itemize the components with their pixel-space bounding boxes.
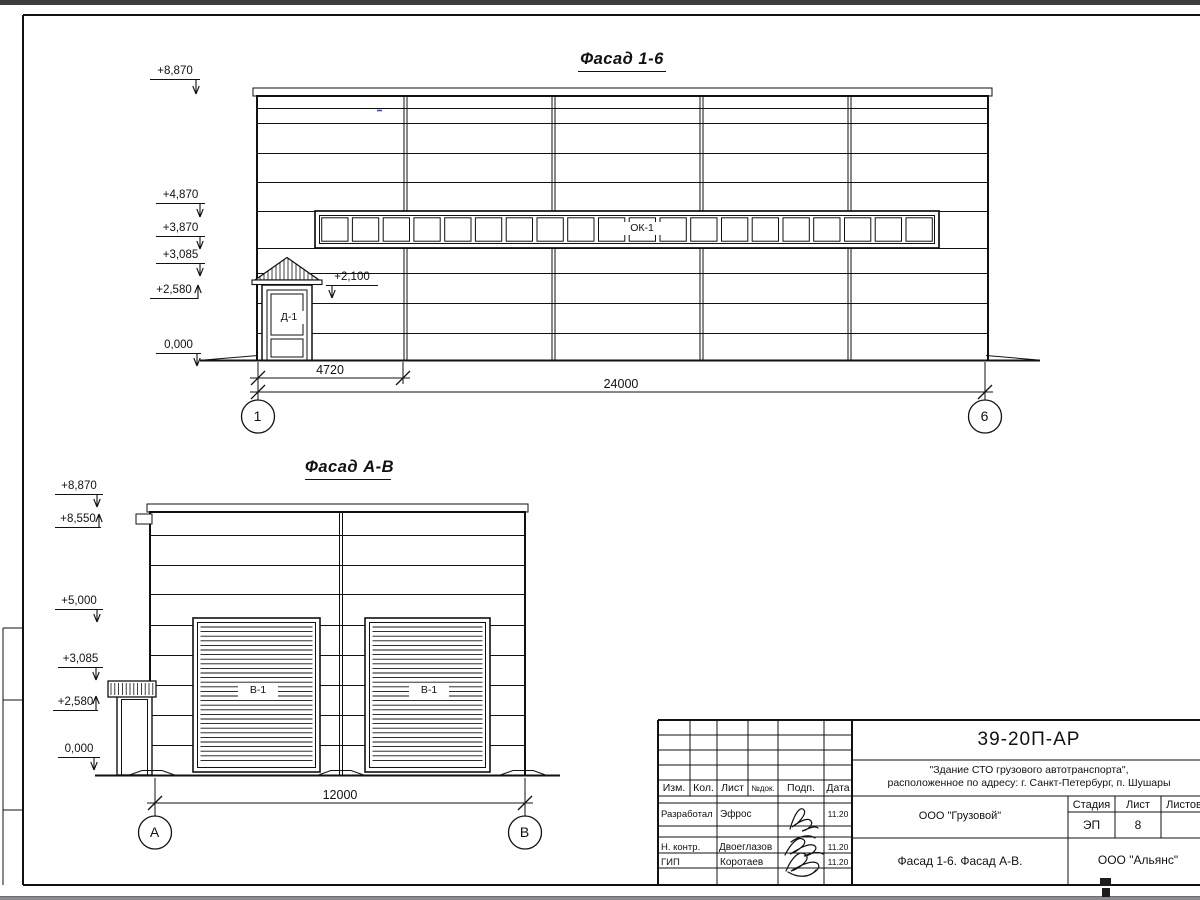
signature-korotaev <box>786 853 819 876</box>
signature-efros <box>790 809 818 831</box>
elevation-mark: +2,580 <box>53 695 98 711</box>
dim-4720: 4720 <box>280 363 380 377</box>
tb-sheet-value: 8 <box>1115 818 1161 832</box>
tb-date: 11.20 <box>824 856 852 869</box>
tb-col-data: Дата <box>824 781 852 796</box>
tb-col-izm: Изм. <box>658 781 690 796</box>
elevation-mark: 0,000 <box>58 742 100 758</box>
entrance-door-d1 <box>252 258 322 361</box>
elevation-mark: 0,000 <box>156 338 201 354</box>
axis-bubble-1: 1 <box>241 400 274 433</box>
tb-col-ndok: №док. <box>748 781 778 796</box>
stamp-mark <box>1100 878 1111 897</box>
left-margin-table <box>3 628 23 885</box>
elevation-mark: +8,550 <box>55 512 101 528</box>
tb-sheets-label: Листов <box>1161 799 1200 811</box>
door-tag-d1: Д-1 <box>272 311 306 324</box>
axis-bubble-v: В <box>508 816 541 849</box>
facade-a-v-title: Фасад А-В <box>305 458 391 480</box>
tb-stage-label: Стадия <box>1068 799 1115 811</box>
facade-1-6-title: Фасад 1-6 <box>578 50 666 72</box>
elevation-mark: +4,870 <box>156 188 205 204</box>
ground-line <box>200 356 1040 361</box>
panel-joint-ab <box>340 512 343 775</box>
elevation-mark: +8,870 <box>150 64 200 80</box>
axis-bubble-6: 6 <box>968 400 1001 433</box>
side-door <box>108 681 156 775</box>
tb-date: 11.20 <box>824 808 852 821</box>
tb-organization: ООО "Альянс" <box>1068 853 1200 867</box>
tb-name: Эфрос <box>720 808 777 821</box>
tb-date: 11.20 <box>824 841 852 854</box>
tb-name: Коротаев <box>720 856 777 869</box>
tb-project-line1: "Здание СТО грузового автотранспорта", <box>852 764 1200 777</box>
tb-col-podp: Подп. <box>778 781 824 796</box>
elevation-mark: +3,085 <box>156 248 205 264</box>
roof-pipe <box>136 514 152 524</box>
tb-name: Двоеглазов <box>719 841 778 854</box>
tb-project-line2: расположенное по адресу: г. Санкт-Петерб… <box>852 777 1200 790</box>
dim-24000: 24000 <box>571 377 671 391</box>
door-elevation-mark: +2,100 <box>326 270 378 286</box>
axis-bubble-a: А <box>138 816 171 849</box>
tb-sheet-label: Лист <box>1115 799 1161 811</box>
elevation-mark: +5,000 <box>55 594 103 610</box>
tb-stage-value: ЭП <box>1068 818 1115 832</box>
drawing-sheet: Фасад 1-6 +8,870 +4,870 +3,870 +3,085 +2… <box>0 0 1200 900</box>
window-tag-ok1: ОК-1 <box>621 222 663 235</box>
tb-client: ООО "Грузовой" <box>852 810 1068 822</box>
tb-role: ГИП <box>661 856 716 869</box>
tb-col-kol: Кол. <box>690 781 717 796</box>
gate-tag-v1: В-1 <box>238 684 278 697</box>
elevation-mark: +2,580 <box>150 283 198 299</box>
gate-tag-v1: В-1 <box>409 684 449 697</box>
tb-col-list: Лист <box>717 781 748 796</box>
dim-12000: 12000 <box>290 788 390 802</box>
handwritten-signatures <box>785 809 823 877</box>
elevation-mark: +3,870 <box>156 221 205 237</box>
tb-role: Н. контр. <box>661 841 716 854</box>
tb-role: Разработал <box>661 808 716 821</box>
elevation-mark: +3,085 <box>58 652 103 668</box>
tb-doc-number: 39-20П-АР <box>852 722 1200 758</box>
elevation-mark: +8,870 <box>55 479 103 495</box>
tb-drawing-title: Фасад 1-6. Фасад А-В. <box>852 854 1068 868</box>
